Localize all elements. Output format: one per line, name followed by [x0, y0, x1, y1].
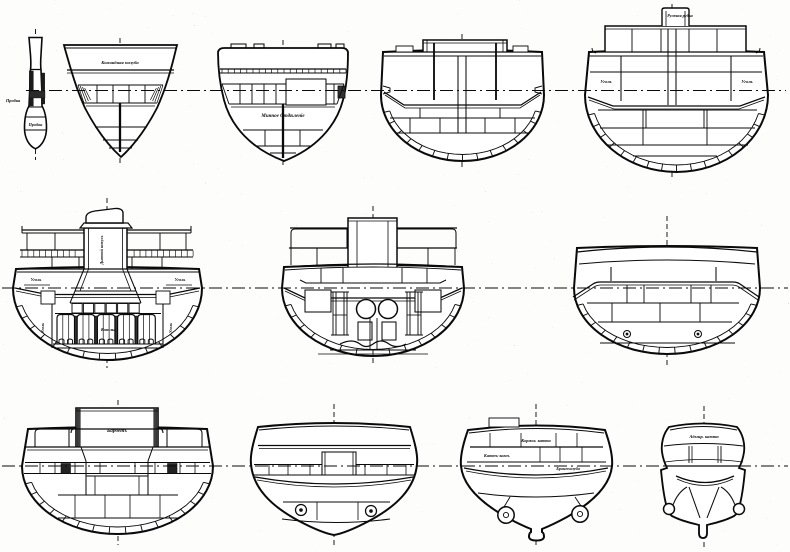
- svg-text:Уголь: Уголь: [175, 277, 186, 282]
- svg-text:Пробка: Пробка: [5, 98, 21, 103]
- svg-text:Уголь: Уголь: [600, 79, 611, 84]
- svg-text:Командная палуба: Командная палуба: [100, 60, 139, 65]
- svg-text:Уголь: Уголь: [741, 79, 752, 84]
- svg-text:Бронепалуба: Бронепалуба: [555, 466, 580, 471]
- svg-text:Кормов. каюта: Кормов. каюта: [520, 438, 551, 443]
- svg-text:Пробка: Пробка: [28, 122, 43, 127]
- svg-text:Адмир. каюта: Адмир. каюта: [688, 434, 719, 439]
- svg-text:Дымовой кожухъ: Дымовой кожухъ: [99, 236, 104, 266]
- svg-text:Котлы: Котлы: [100, 327, 116, 332]
- svg-text:Уголь: Уголь: [168, 323, 173, 333]
- svg-text:Каютъ-комп.: Каютъ-комп.: [483, 453, 510, 458]
- svg-text:Барбетъ: Барбетъ: [106, 427, 127, 434]
- svg-text:Рулевая рубка: Рулевая рубка: [667, 13, 693, 18]
- svg-text:Уголь: Уголь: [31, 277, 42, 282]
